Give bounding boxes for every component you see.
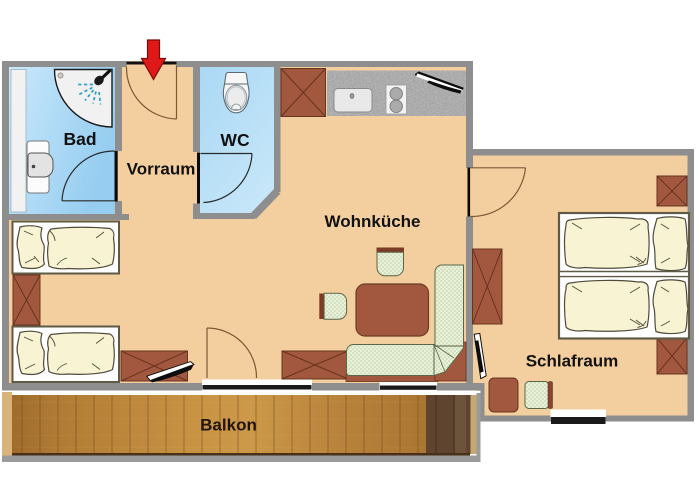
svg-text:Balkon: Balkon [200,416,257,435]
svg-text:Schlafraum: Schlafraum [526,352,619,371]
svg-text:WC: WC [220,130,250,150]
svg-text:Vorraum: Vorraum [127,160,196,179]
svg-text:Wohnküche: Wohnküche [324,212,420,231]
svg-text:Bad: Bad [63,129,96,149]
